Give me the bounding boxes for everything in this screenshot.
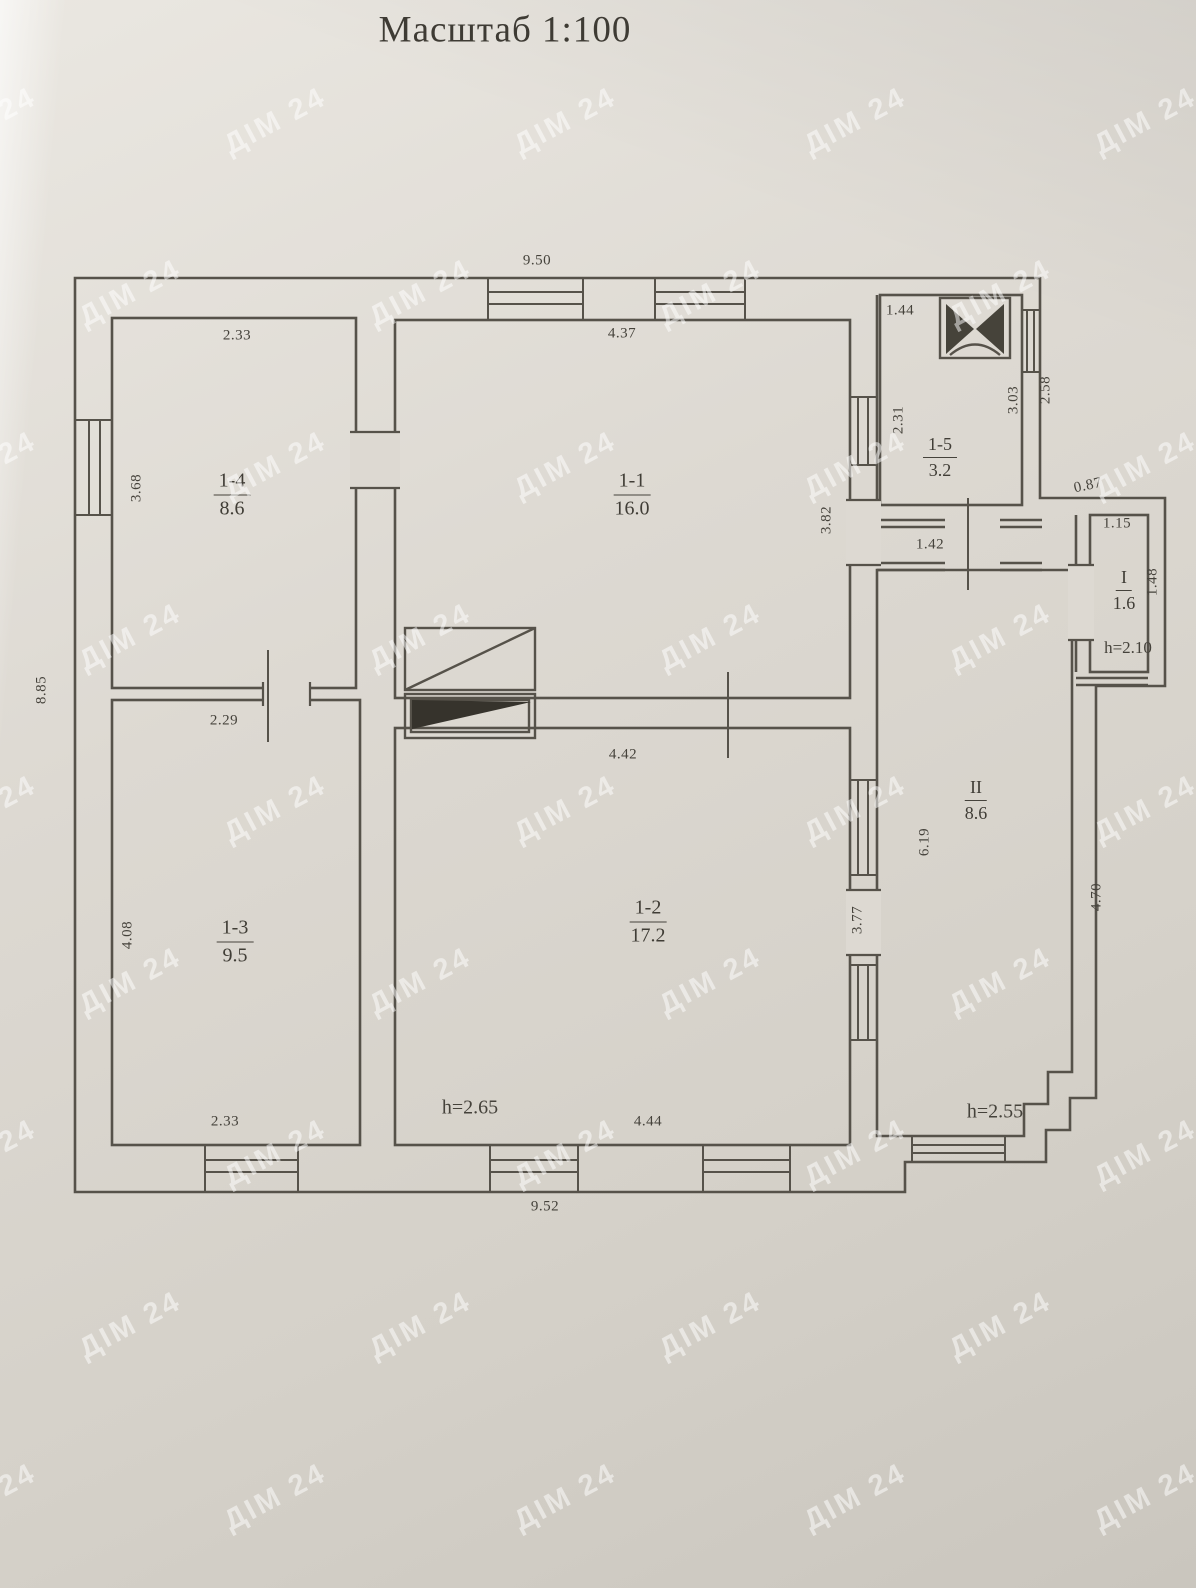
dim-r15-top: 1.44: [886, 303, 914, 320]
window-bottom-3: [703, 1145, 790, 1192]
room-area: 3.2: [929, 458, 952, 482]
room-id: I: [1116, 566, 1132, 591]
outer-wall: [75, 278, 1165, 1192]
window-left-wall: [75, 420, 112, 515]
stairs-icon: [405, 628, 535, 690]
window-top-1: [488, 278, 583, 320]
dim-r13-bottom: 2.33: [211, 1114, 239, 1131]
dim-r13-left: 4.08: [120, 921, 137, 949]
scanned-floorplan-page: Масштаб 1:100 9.50 2.33 4.37 1.44 2.29 4…: [0, 0, 1196, 1588]
dim-r13-top: 2.29: [210, 713, 238, 730]
stove-icon: [405, 694, 535, 738]
window-1-1-right: [850, 397, 877, 465]
room-area: 9.5: [222, 943, 247, 969]
room-id: II: [965, 776, 987, 801]
dim-r15-left: 2.31: [891, 406, 908, 434]
room-label-1-5: 1-5 3.2: [923, 433, 957, 481]
dim-r14-left: 3.68: [129, 474, 146, 502]
room-id: 1-3: [217, 916, 254, 943]
room-label-1-1: 1-1 16.0: [614, 469, 651, 522]
window-top-2: [655, 278, 745, 320]
hall-wall: [877, 520, 1042, 570]
window-corridor-bottom: [912, 1136, 1005, 1162]
height-note-II: h=2.55: [967, 1101, 1023, 1124]
room-id: 1-2: [630, 896, 667, 923]
dim-r14-top: 2.33: [223, 328, 251, 345]
corridor-II-walls: [877, 570, 1072, 1136]
window-corridor-2: [850, 965, 877, 1040]
boiler-icon: [940, 298, 1010, 358]
dim-rII-left: 6.19: [917, 828, 934, 856]
window-1-5-right: [1022, 310, 1040, 372]
scale-title: Масштаб 1:100: [379, 9, 632, 52]
room-area: 16.0: [614, 496, 649, 522]
room-id: 1-1: [614, 469, 651, 496]
room-label-1-2: 1-2 17.2: [630, 896, 667, 949]
room-id: 1-5: [923, 433, 957, 458]
dim-r15-right-inner: 3.03: [1006, 386, 1023, 414]
dim-left-total: 8.85: [34, 676, 51, 704]
dim-rI-right: 1.48: [1145, 568, 1162, 596]
door-openings: [263, 432, 1094, 955]
room-area: 8.6: [219, 496, 244, 522]
room-area: 1.6: [1113, 591, 1136, 615]
dim-r12-top: 4.42: [609, 747, 637, 764]
dim-rI-top: 1.15: [1103, 516, 1131, 533]
room-label-1-3: 1-3 9.5: [217, 916, 254, 969]
room-area: 8.6: [965, 801, 988, 825]
window-bottom-2: [490, 1145, 578, 1192]
room-label-I: I 1.6: [1113, 566, 1136, 614]
room-label-II: II 8.6: [965, 776, 988, 824]
floorplan-drawing: [0, 0, 1196, 1588]
window-corridor-1: [850, 780, 877, 875]
dim-hall-width: 1.42: [916, 537, 944, 554]
dim-r11-right: 3.82: [819, 506, 836, 534]
dim-r11-top: 4.37: [608, 326, 636, 343]
room-id: 1-4: [214, 469, 251, 496]
room-label-1-4: 1-4 8.6: [214, 469, 251, 522]
window-bottom-1: [205, 1145, 298, 1192]
dim-r12-bottom: 4.44: [634, 1114, 662, 1131]
dim-r12-right: 3.77: [850, 906, 867, 934]
height-note-1-2: h=2.65: [442, 1097, 498, 1120]
dim-rII-right: 4.70: [1089, 883, 1106, 911]
room-I-threshold: [1076, 678, 1148, 685]
dim-bottom-width: 9.52: [531, 1199, 559, 1216]
height-note-I: h=2.10: [1104, 638, 1152, 658]
dim-r15-right-outer: 2.58: [1038, 376, 1055, 404]
room-1-2-walls: [395, 728, 850, 1145]
room-area: 17.2: [630, 923, 665, 949]
dim-top-width: 9.50: [523, 253, 551, 270]
walls: [75, 278, 1165, 1192]
